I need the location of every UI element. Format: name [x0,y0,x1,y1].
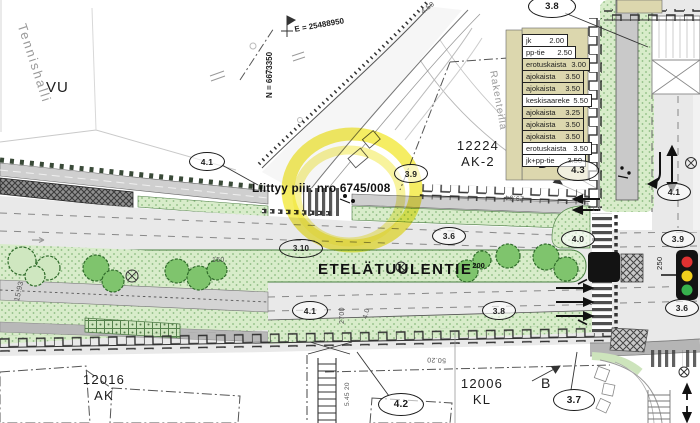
section-ellipse: 3.9 [394,164,428,183]
row-value: 5.50 [573,96,588,105]
street-name-text: ETELÄTUULENTIE [318,261,472,278]
row-label: ajokaista [526,108,556,117]
street-name-sup: 200 [472,261,485,270]
connection-note: Liittyy piir. nro 6745/008 [252,181,390,195]
coordinate-cross [281,16,295,37]
row-label: keskisaareke [526,96,570,105]
street-name-label: ETELÄTUULENTIE200 [318,261,485,278]
dim-label: 29.94 [505,193,524,201]
cross-section-table: jk2.00 pp-tie2.50 erotuskaista3.00 ajoka… [522,35,592,167]
row-value: 3.50 [565,84,580,93]
row-label: erotuskaista [526,60,566,69]
block-12006-type: KL [452,392,512,408]
block-12016-label: 12016 AK [76,372,132,405]
section-ellipse: 4.1 [657,183,691,201]
row-label: erotuskaista [526,144,566,153]
section-marker-b-south: B [541,375,550,391]
block-12224-code: 12224 [448,138,508,154]
row-value: 3.50 [565,132,580,141]
row-label: jk [526,36,531,45]
row-label: ajokaista [526,132,556,141]
section-ellipse: 3.8 [482,301,516,320]
row-value: 3.50 [565,120,580,129]
vu-area-label: VU [46,80,69,96]
dim-label: 5.45 20 [344,382,351,406]
dim-label: 250 [655,257,664,270]
section-ellipse: 3.10 [279,239,323,258]
row-label: jk+pp-tie [526,156,555,165]
street-plan-canvas: Tennishalli VU E = 25488950 N = 6673350 … [0,0,700,423]
section-ellipse: 4.1 [189,152,225,171]
dim-label: 50.20 [427,356,446,364]
block-12224-type: AK-2 [448,154,508,170]
row-value: 3.00 [571,60,586,69]
row-label: ajokaista [526,120,556,129]
row-label: pp-tie [526,48,545,57]
section-ellipse: 3.7 [553,389,595,411]
row-value: 3.50 [573,144,588,153]
section-ellipse: 3.6 [665,299,699,317]
coord-north-label: N = 6673350 [266,52,274,98]
block-12016-code: 12016 [76,372,132,388]
section-ellipse: 4.2 [378,393,424,416]
section-ellipse: 3.9 [661,230,695,248]
row-value: 2.50 [557,48,572,57]
block-12224-label: 12224 AK-2 [448,138,508,171]
section-ellipse: 4.1 [292,301,328,320]
row-label: ajokaista [526,84,556,93]
block-12016-type: AK [76,388,132,404]
block-12006-code: 12006 [452,376,512,392]
section-ellipse: 4.3 [557,160,599,181]
section-ellipse: 4.0 [561,230,595,248]
row-value: 2.00 [549,36,564,45]
row-value: 3.50 [565,72,580,81]
dim-label: 150 [212,257,225,264]
block-12006-label: 12006 KL [452,376,512,409]
building-outlines [0,366,452,423]
section-ellipse: 3.6 [432,227,466,245]
dim-label: 1.8 [592,207,601,213]
dim-label: 2700 [339,307,346,324]
row-value: 3.25 [565,108,580,117]
row-label: ajokaista [526,72,556,81]
